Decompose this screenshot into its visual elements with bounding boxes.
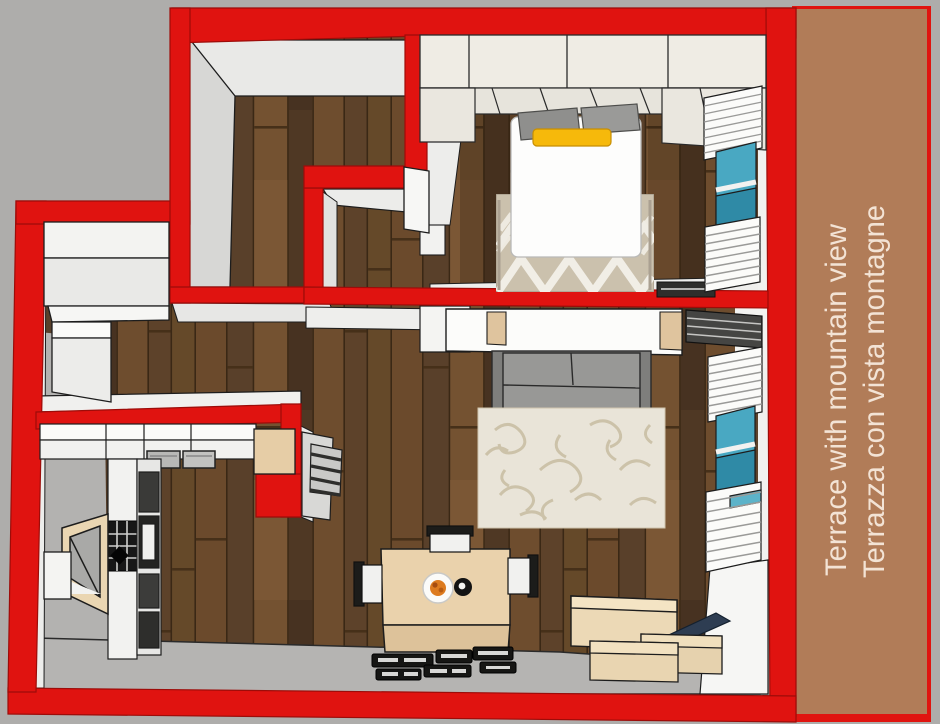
- svg-text:Terrazza con vista montagne: Terrazza con vista montagne: [859, 205, 891, 578]
- svg-text:Terrace with mountain view: Terrace with mountain view: [821, 223, 853, 576]
